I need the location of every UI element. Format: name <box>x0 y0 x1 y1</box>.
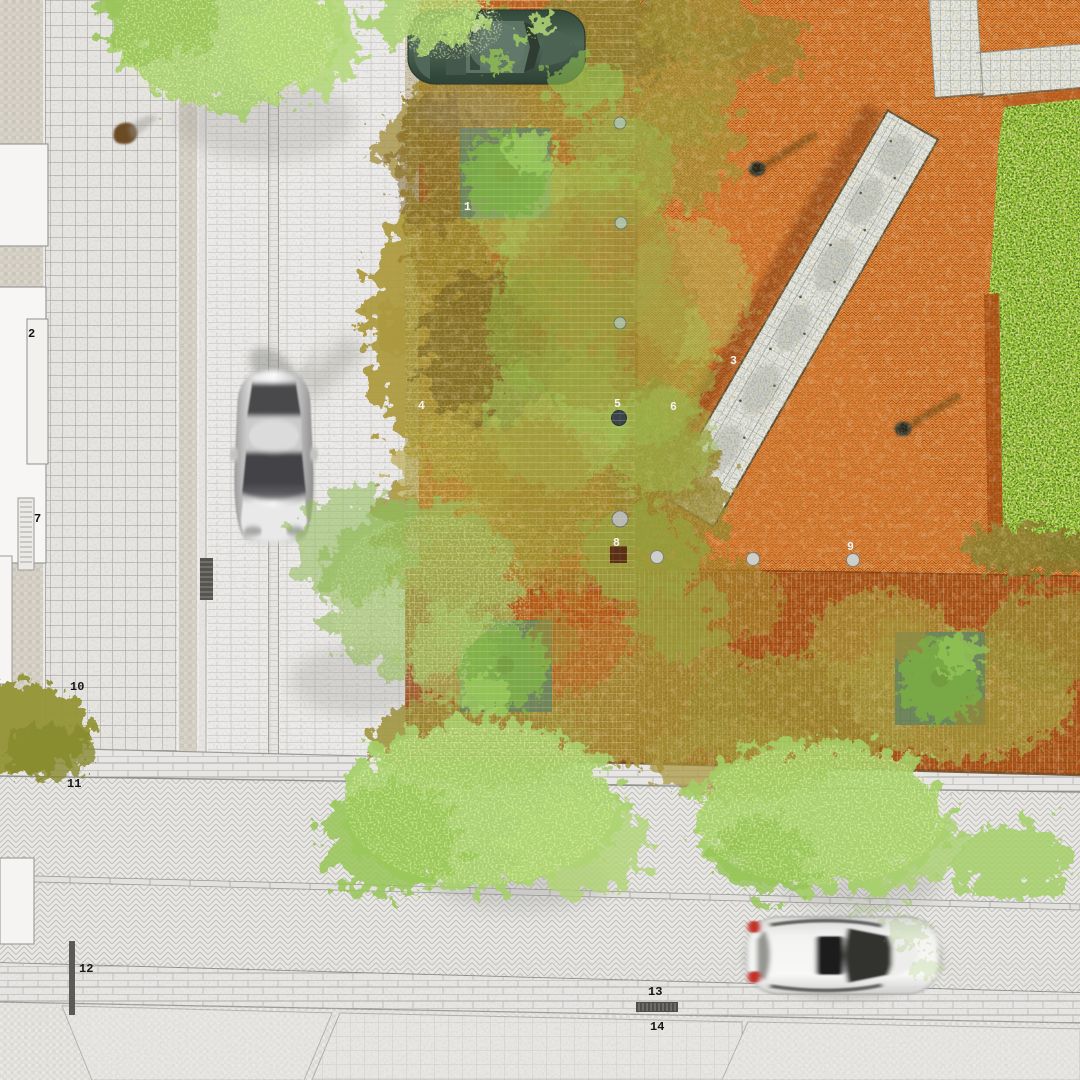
svg-text:1: 1 <box>464 201 471 214</box>
svg-text:7: 7 <box>34 512 41 526</box>
svg-text:13: 13 <box>648 985 662 999</box>
svg-text:2: 2 <box>28 327 35 341</box>
svg-text:3: 3 <box>730 355 737 368</box>
svg-text:8: 8 <box>613 537 620 550</box>
svg-text:14: 14 <box>650 1020 664 1034</box>
svg-text:5: 5 <box>614 398 621 411</box>
svg-text:12: 12 <box>79 962 93 976</box>
svg-text:6: 6 <box>670 401 677 414</box>
svg-text:4: 4 <box>418 400 425 413</box>
svg-text:11: 11 <box>67 777 81 791</box>
svg-text:9: 9 <box>847 541 854 554</box>
svg-text:10: 10 <box>70 680 84 694</box>
